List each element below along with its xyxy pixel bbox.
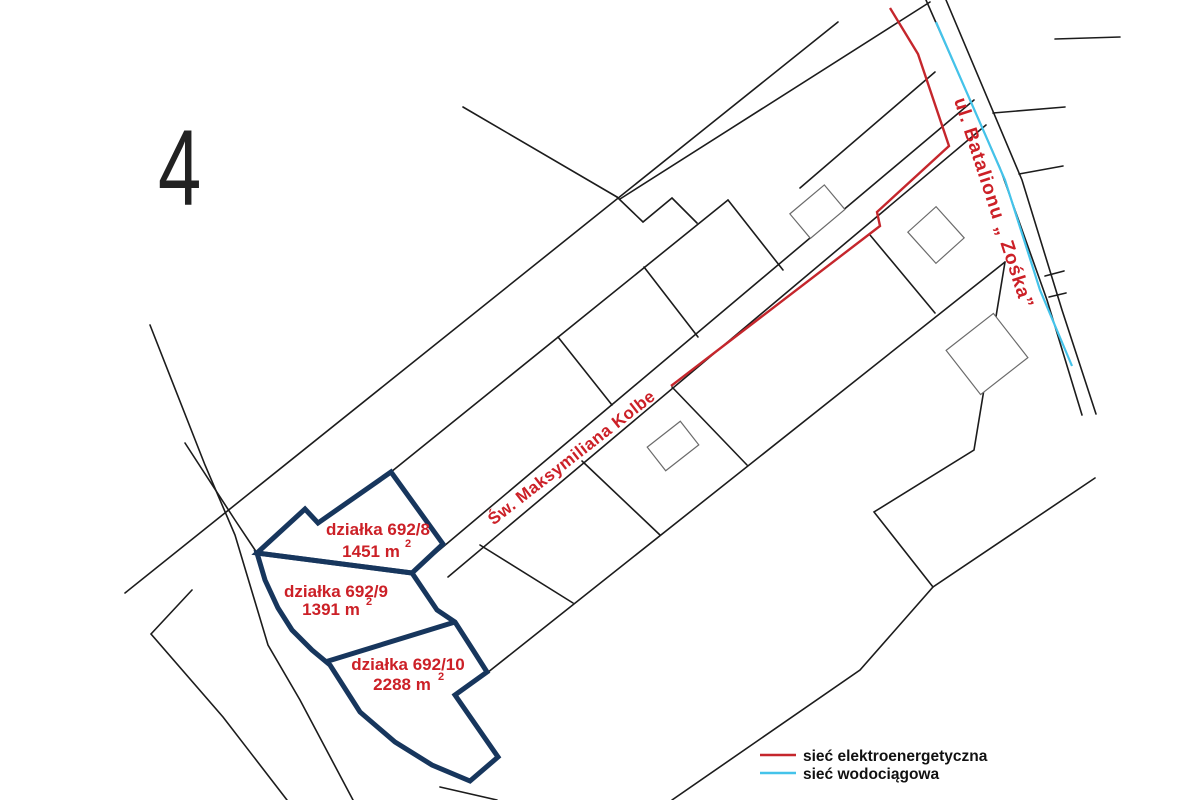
parcel-divider — [558, 337, 612, 405]
highlighted-parcels — [257, 472, 498, 781]
parcel-692-10-area: 2288 m — [373, 675, 431, 694]
parcel-692-10-label: działka 692/10 — [351, 655, 464, 674]
parcel-692-8-area: 1451 m — [342, 542, 400, 561]
legend-item-water: sieć wodociągowa — [760, 766, 939, 783]
building-outline — [647, 421, 699, 470]
cadastral-map-page: 4 działka 692/8 1451 m 2 działka 692/9 1… — [0, 0, 1200, 800]
boundary-line — [463, 107, 617, 197]
boundary-line — [1055, 37, 1120, 39]
boundary-line — [125, 22, 838, 593]
building-outline — [946, 313, 1028, 394]
building-outline — [790, 185, 845, 238]
legend-item-power: sieć elektroenergetyczna — [760, 748, 988, 765]
legend: sieć elektroenergetyczna sieć wodociągow… — [760, 748, 988, 783]
parcel-692-8-label: działka 692/8 — [326, 520, 430, 539]
parcel-692-9-label: działka 692/9 — [284, 582, 388, 601]
parcel-692-9-area-exponent: 2 — [366, 596, 372, 608]
boundary-line — [874, 262, 1005, 587]
boundary-line — [151, 590, 287, 800]
cadastral-map: 4 działka 692/8 1451 m 2 działka 692/9 1… — [0, 0, 1200, 800]
parcel-692-10-area-exponent: 2 — [438, 671, 444, 683]
legend-water-label: sieć wodociągowa — [803, 766, 939, 783]
parcel-692-9-area: 1391 m — [302, 600, 360, 619]
parcel-divider — [728, 200, 783, 270]
building-outline — [908, 207, 964, 264]
parcel-divider — [1019, 166, 1063, 174]
parcel-divider — [1045, 271, 1064, 276]
boundary-line — [440, 787, 497, 800]
parcel-divider — [480, 545, 573, 603]
parcel-divider — [993, 107, 1065, 113]
sheet-number: 4 — [158, 107, 201, 228]
legend-power-label: sieć elektroenergetyczna — [803, 748, 988, 765]
boundary-line — [800, 72, 935, 188]
parcel-divider — [582, 461, 660, 535]
street-label-kolbe: Św. Maksymiliana Kolbe — [484, 386, 659, 528]
parcel-divider — [644, 267, 698, 337]
street-label-zoska: ul. Batalionu „ Zośka” — [949, 95, 1037, 311]
boundary-line — [617, 197, 697, 223]
parcel-692-8-area-exponent: 2 — [405, 538, 411, 550]
boundary-line — [620, 2, 930, 199]
